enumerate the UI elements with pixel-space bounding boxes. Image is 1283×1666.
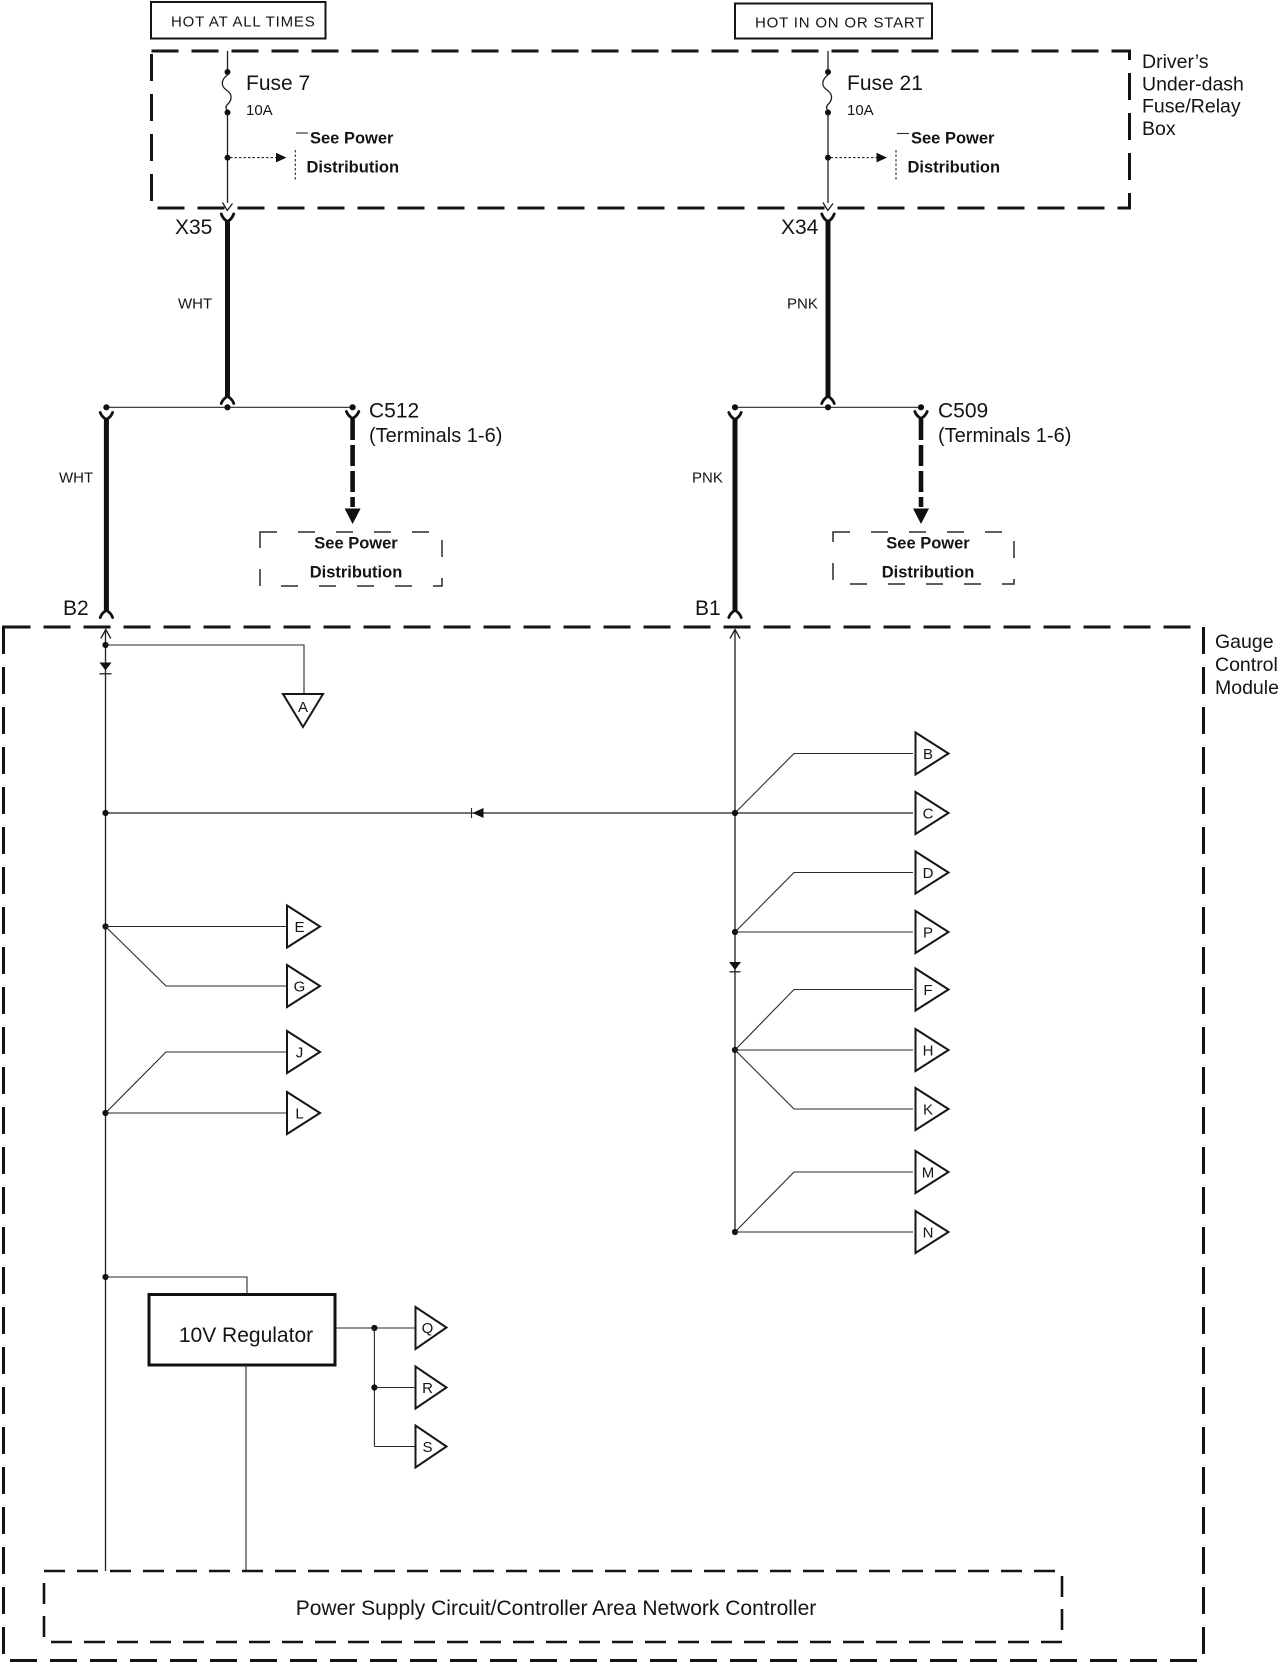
svg-text:S: S <box>422 1439 432 1456</box>
svg-text:F: F <box>923 982 932 999</box>
svg-text:WHT: WHT <box>59 470 93 487</box>
svg-text:R: R <box>422 1380 433 1397</box>
svg-text:P: P <box>923 925 933 942</box>
svg-text:See Power: See Power <box>314 535 398 553</box>
svg-text:Fuse 21: Fuse 21 <box>847 72 923 95</box>
svg-text:Distribution: Distribution <box>310 564 403 582</box>
svg-text:WHT: WHT <box>178 296 212 313</box>
svg-text:B2: B2 <box>63 597 89 620</box>
svg-text:See Power: See Power <box>310 130 394 148</box>
svg-text:G: G <box>294 979 306 996</box>
svg-text:HOT IN ON OR START: HOT IN ON OR START <box>755 15 925 32</box>
svg-text:X34: X34 <box>781 216 819 239</box>
svg-text:See Power: See Power <box>911 130 995 148</box>
svg-text:H: H <box>923 1043 934 1060</box>
svg-text:10A: 10A <box>847 102 874 119</box>
svg-text:B1: B1 <box>695 597 721 620</box>
svg-text:E: E <box>294 919 304 936</box>
svg-text:J: J <box>296 1045 304 1062</box>
svg-text:Distribution: Distribution <box>882 564 975 582</box>
svg-text:PNK: PNK <box>787 296 818 313</box>
svg-text:M: M <box>922 1165 935 1182</box>
svg-text:X35: X35 <box>175 216 212 239</box>
svg-text:Distribution: Distribution <box>307 159 400 177</box>
svg-text:See Power: See Power <box>886 535 970 553</box>
svg-text:L: L <box>295 1106 303 1123</box>
svg-text:D: D <box>923 865 934 882</box>
svg-text:10A: 10A <box>246 102 273 119</box>
svg-text:Distribution: Distribution <box>908 159 1001 177</box>
svg-text:C: C <box>923 806 934 823</box>
svg-text:10V Regulator: 10V Regulator <box>179 1324 313 1347</box>
svg-text:B: B <box>923 746 933 763</box>
svg-text:N: N <box>923 1225 934 1242</box>
svg-text:Q: Q <box>422 1320 434 1337</box>
svg-text:HOT AT ALL TIMES: HOT AT ALL TIMES <box>171 14 316 31</box>
svg-text:K: K <box>923 1102 933 1119</box>
svg-text:A: A <box>298 699 308 716</box>
svg-text:Power Supply Circuit/Controlle: Power Supply Circuit/Controller Area Net… <box>296 1597 817 1620</box>
svg-text:PNK: PNK <box>692 470 723 487</box>
svg-text:Fuse 7: Fuse 7 <box>246 72 310 95</box>
svg-text:GaugeControlModule: GaugeControlModule <box>1215 631 1279 699</box>
